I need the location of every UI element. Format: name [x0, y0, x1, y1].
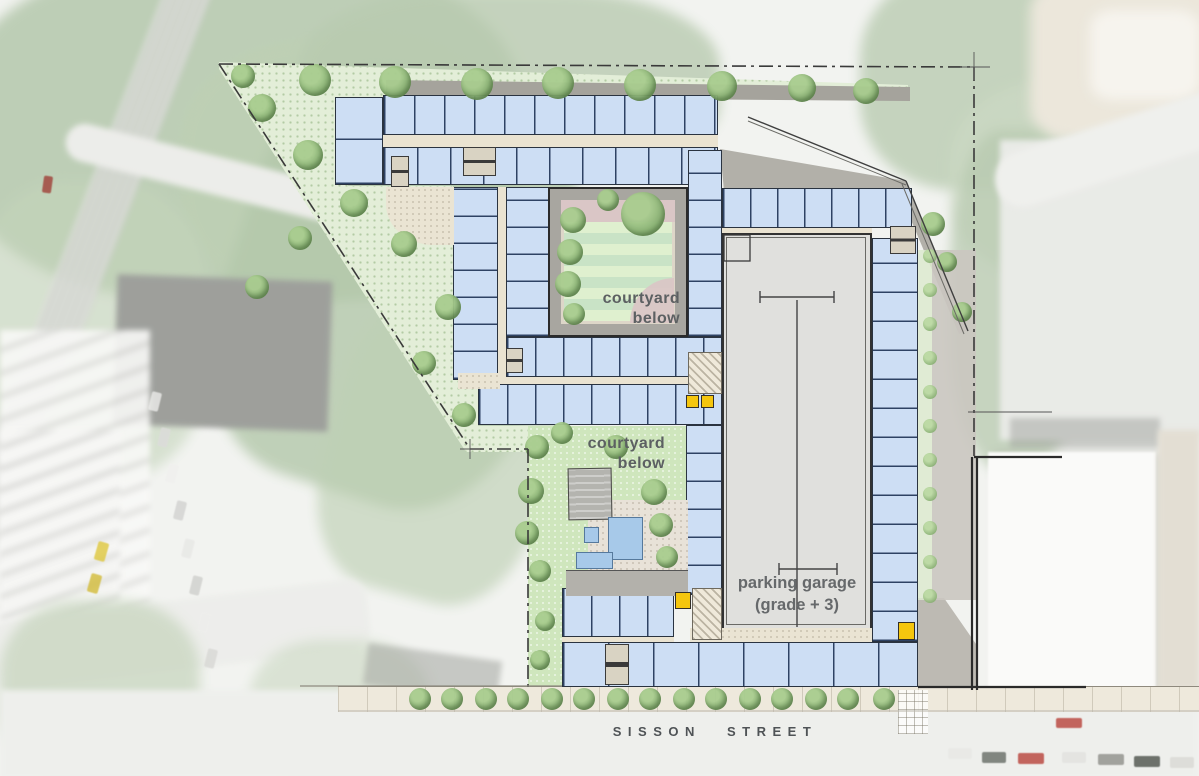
water-feature	[584, 527, 599, 543]
walkway-middle-west	[458, 373, 500, 389]
corridor-garage-north	[722, 228, 872, 233]
parking-garage-label: parking garage (grade + 3)	[697, 572, 897, 616]
corridor-north-wing	[383, 135, 718, 147]
elevator-core	[686, 395, 699, 408]
units-north-wing-bottom-row	[383, 147, 718, 185]
corridor-south-wing	[562, 637, 674, 642]
water-feature	[576, 552, 613, 569]
site-plan-canvas: courtyard below courtyard below parking …	[0, 0, 1199, 776]
units-garage-north-row	[722, 188, 912, 228]
upper-courtyard-label-line1: courtyard	[560, 289, 680, 309]
stair-south-wing	[605, 644, 629, 685]
lower-courtyard-pavilion-roof	[568, 468, 613, 521]
street-name-label: SISSON STREET	[585, 724, 845, 739]
sisson-street-sidewalk	[338, 686, 1199, 712]
elevator-core	[675, 592, 691, 609]
upper-courtyard-pink-band	[561, 200, 675, 222]
corridor-west-leg	[498, 187, 506, 380]
east-planting-strip	[918, 250, 932, 600]
units-west-end-block	[335, 97, 383, 185]
upper-courtyard-label: courtyard below	[560, 289, 680, 329]
stair-west-leg	[463, 147, 496, 176]
parking-garage-label-line1: parking garage	[697, 572, 897, 594]
upper-courtyard-label-line2: below	[560, 309, 680, 329]
parking-garage	[722, 233, 872, 630]
units-west-leg-inner	[506, 187, 550, 337]
water-feature	[608, 517, 643, 560]
stair-northeast	[890, 226, 916, 254]
lower-courtyard-label-line2: below	[545, 454, 665, 474]
lower-courtyard-label-line1: courtyard	[545, 434, 665, 454]
units-north-wing-top-row	[383, 95, 718, 135]
crosswalk-hatch	[898, 690, 928, 734]
lower-courtyard-walkway	[566, 570, 688, 596]
stair-middle-wing	[506, 348, 523, 373]
units-west-leg-outer	[453, 187, 498, 380]
lobby-entry-hatch	[688, 352, 722, 394]
stair-northwest	[391, 156, 409, 187]
lower-courtyard-label: courtyard below	[545, 434, 665, 474]
elevator-core	[898, 622, 915, 640]
units-east-leg-upper-courtyard	[688, 150, 722, 337]
units-mid-column	[686, 425, 722, 595]
elevator-core	[701, 395, 714, 408]
parking-garage-label-line2: (grade + 3)	[697, 594, 897, 616]
